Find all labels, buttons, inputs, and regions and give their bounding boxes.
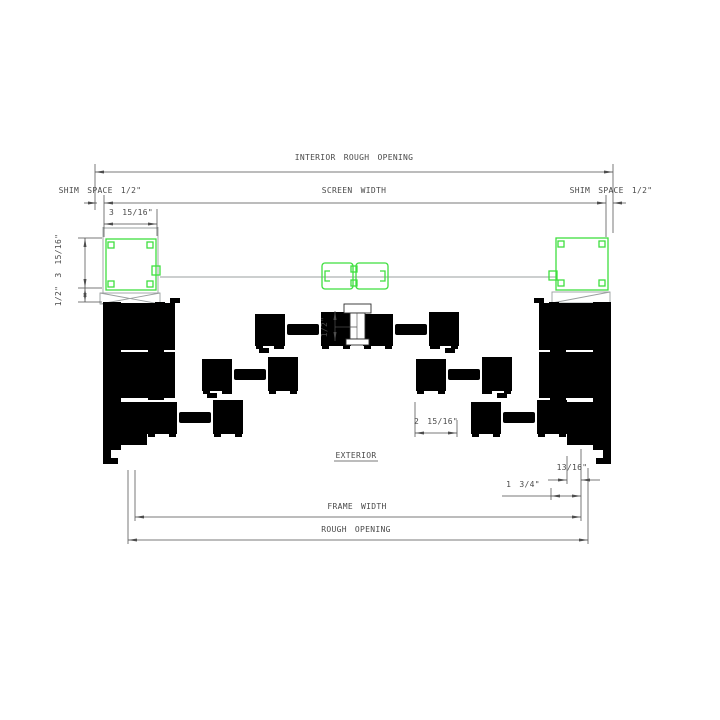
panel-rail (255, 312, 351, 349)
dim-jamb-offset: 13/16" (557, 463, 588, 472)
panel-rail (471, 400, 567, 437)
screen-highlight-left (106, 239, 160, 290)
label-exterior: EXTERIOR (336, 451, 377, 460)
jamb-right (539, 302, 624, 464)
cad-canvas: INTERIOR ROUGH OPENING SHIM SPACE 1/2" S… (0, 0, 720, 720)
screen-box-left (100, 227, 160, 304)
dim-rough-opening: ROUGH OPENING (321, 525, 391, 534)
dim-screen-box-depth: 1/2" 3 15/16" (54, 234, 63, 307)
panel-rail (202, 357, 298, 394)
screen-interlock-center (322, 263, 388, 289)
dim-pocket-offset: 1 3/4" (506, 480, 540, 489)
dim-stile-width: 2 15/16" (414, 417, 458, 426)
window-section-drawing: INTERIOR ROUGH OPENING SHIM SPACE 1/2" S… (0, 0, 720, 720)
panel-rail (147, 400, 243, 437)
dim-center-gap: 1/2" (320, 317, 329, 337)
dim-screen-box-width: 3 15/16" (109, 208, 153, 217)
panel-rail (363, 312, 459, 349)
screen-box-right (549, 238, 610, 303)
jamb-left (90, 302, 175, 464)
dim-interior-rough-opening: INTERIOR ROUGH OPENING (295, 153, 414, 162)
screen-highlight-right (549, 238, 608, 290)
dim-frame-width: FRAME WIDTH (327, 502, 386, 511)
frame-assembly (90, 298, 624, 464)
dim-shim-space-left: SHIM SPACE 1/2" (59, 186, 142, 195)
dim-shim-space-right: SHIM SPACE 1/2" (570, 186, 653, 195)
dim-screen-width: SCREEN WIDTH (322, 186, 386, 195)
panel-rail (416, 357, 512, 394)
